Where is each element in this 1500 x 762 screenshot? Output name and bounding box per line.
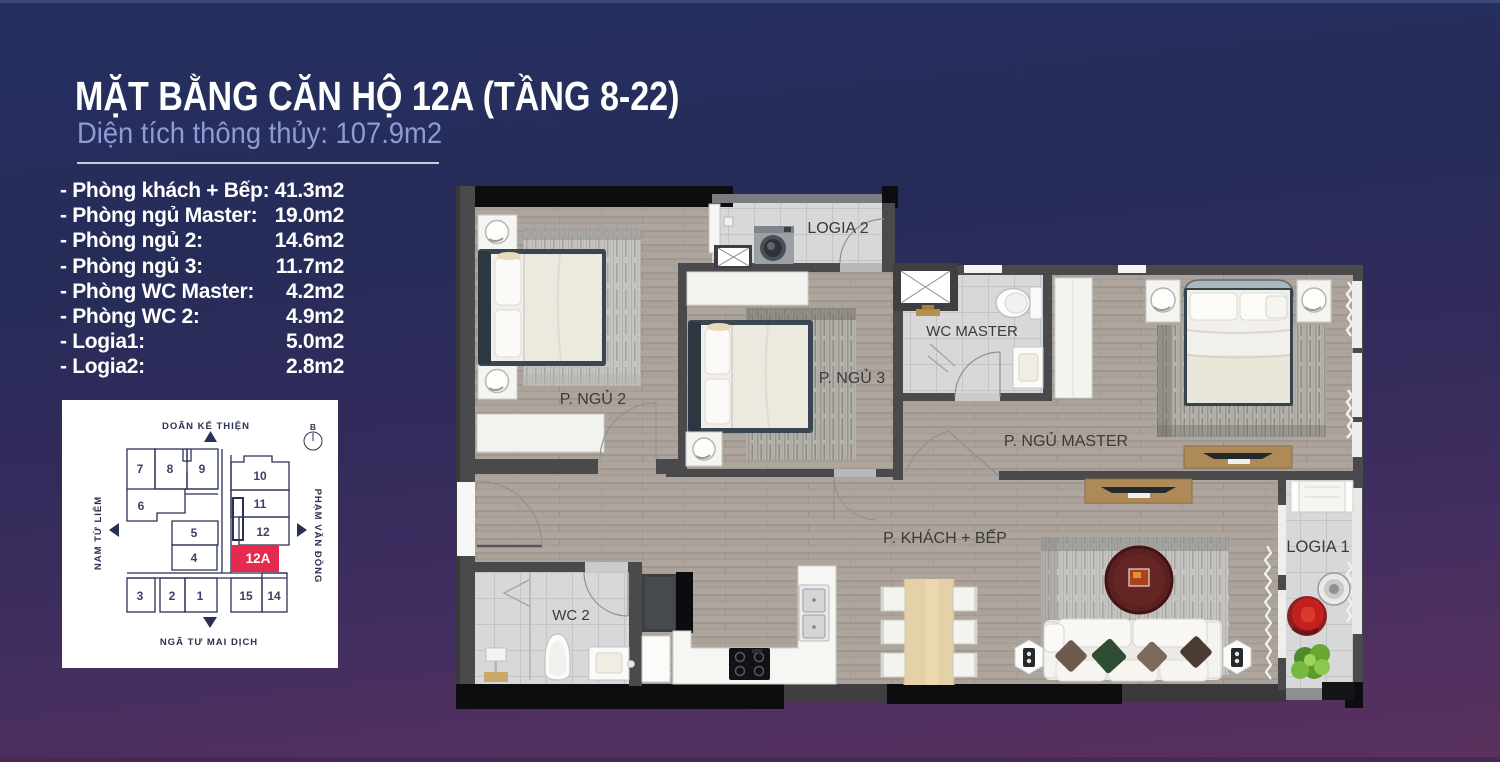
svg-text:P. NGỦ 2: P. NGỦ 2 [560,389,627,408]
svg-text:P. NGỦ 3: P. NGỦ 3 [819,368,886,387]
svg-text:P. KHÁCH + BẾP: P. KHÁCH + BẾP [883,528,1007,547]
svg-text:WC MASTER: WC MASTER [926,323,1018,340]
svg-text:WC 2: WC 2 [552,607,590,624]
svg-text:LOGIA 1: LOGIA 1 [1286,538,1349,556]
svg-text:LOGIA 2: LOGIA 2 [807,220,868,237]
svg-text:P. NGỦ MASTER: P. NGỦ MASTER [1004,431,1128,450]
